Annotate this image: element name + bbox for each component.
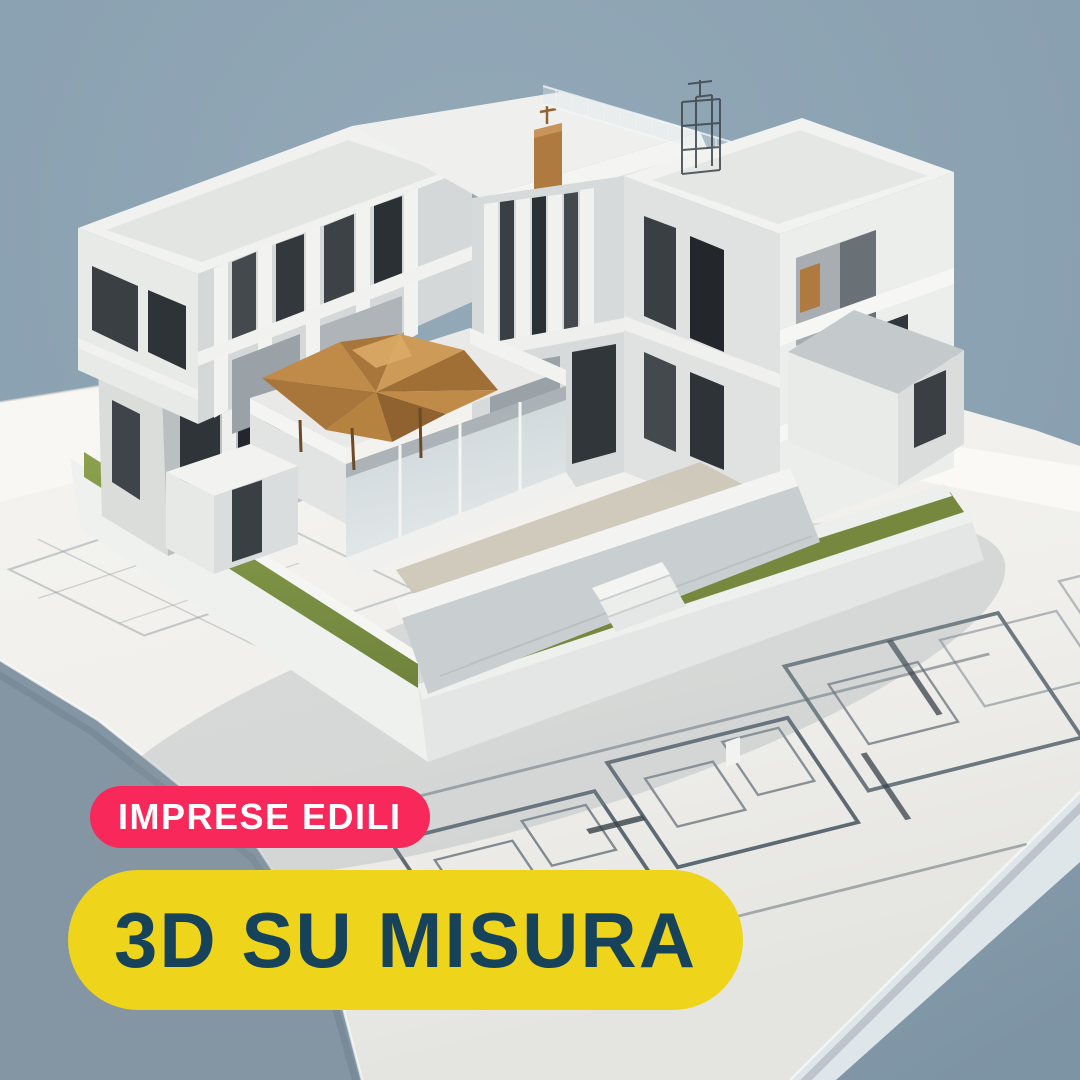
- imprese-edili-label: IMPRESE EDILI: [118, 796, 402, 838]
- 3d-su-misura-label: 3D SU MISURA: [114, 895, 697, 986]
- imprese-edili-badge: IMPRESE EDILI: [90, 786, 430, 848]
- 3d-su-misura-badge: 3D SU MISURA: [68, 870, 743, 1010]
- poster: IMPRESE EDILI 3D SU MISURA: [0, 0, 1080, 1080]
